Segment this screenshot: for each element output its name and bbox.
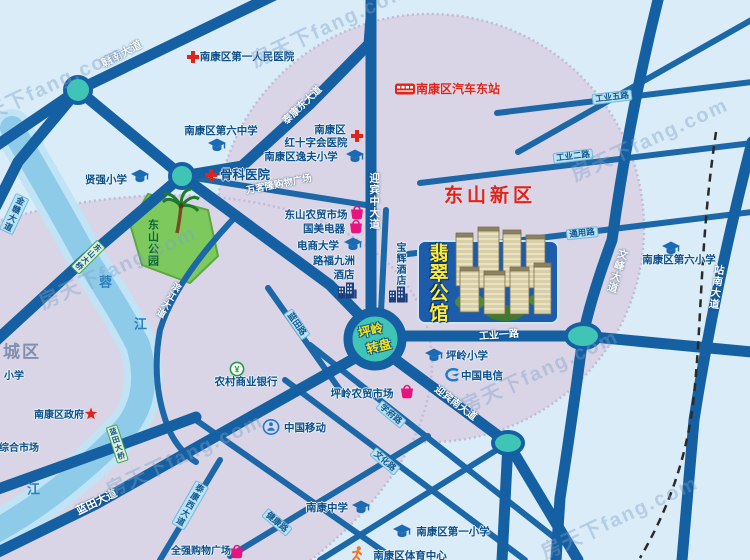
buildings-render	[455, 227, 552, 321]
map-canvas[interactable]: 赣南大道泰康东大道迎宾中大道万客隆购物广场迎宾南大道文峰大道站南大道工业一路蓝田…	[0, 0, 750, 560]
feicui-mansion-property[interactable]	[418, 227, 558, 323]
map-graphics	[0, 0, 750, 560]
pingling-roundabout	[348, 312, 402, 366]
